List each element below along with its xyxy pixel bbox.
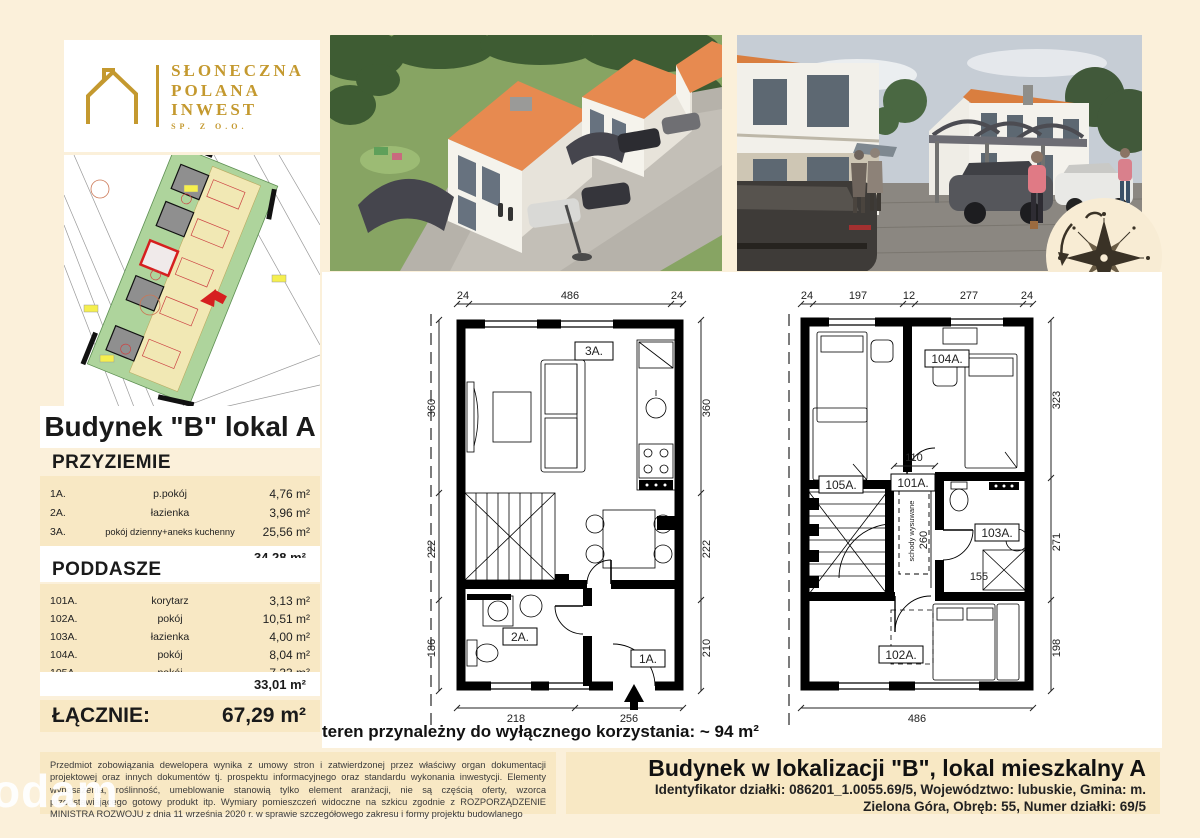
svg-text:103A.: 103A. [981, 526, 1012, 540]
svg-text:105A.: 105A. [825, 478, 856, 492]
building-title-strip: Budynek "B" lokal A [40, 406, 320, 448]
table-row: 101A. korytarz 3,13 m² [50, 592, 310, 610]
brand-line1: SŁONECZNA [171, 61, 304, 81]
site-plan-drawing [64, 155, 320, 407]
brand-line3: INWEST [171, 100, 304, 120]
plot-id-line1: Identyfikator działki: 086201_1.0055.69/… [580, 782, 1146, 799]
total-value: 33,01 m² [254, 677, 306, 692]
room-name: p.pokój [92, 488, 248, 500]
grand-total-value: 67,29 m² [222, 704, 306, 728]
svg-text:110: 110 [905, 452, 923, 464]
svg-text:24: 24 [801, 290, 813, 302]
building-title: Budynek "B" lokal A [44, 411, 315, 443]
svg-text:schody wysuwane: schody wysuwane [907, 501, 916, 562]
plot-id-line2: Zielona Góra, Obręb: 55, Numer działki: … [580, 799, 1146, 816]
room-name: korytarz [92, 595, 248, 607]
house-logo-icon [80, 62, 144, 130]
svg-text:222: 222 [426, 540, 438, 558]
total-poddasze: 33,01 m² [40, 672, 320, 696]
svg-text:24: 24 [1021, 290, 1033, 302]
floorplan-ground: 24 486 24 360 222 186 360 222 210 218 25… [425, 288, 715, 733]
svg-text:12: 12 [903, 290, 915, 302]
svg-text:486: 486 [908, 713, 926, 725]
room-number: 2A. [50, 507, 92, 519]
table-przyziemie: 1A. p.pokój 4,76 m² 2A. łazienka 3,96 m²… [40, 476, 320, 546]
svg-text:1A.: 1A. [639, 652, 657, 666]
room-name: pokój [92, 649, 248, 661]
render-aerial-view [330, 35, 722, 271]
svg-text:277: 277 [960, 290, 978, 302]
svg-text:210: 210 [701, 639, 713, 657]
svg-text:198: 198 [1051, 639, 1063, 657]
brand-logo: SŁONECZNA POLANA INWEST SP. Z O.O. [64, 40, 320, 152]
portal-watermark: odam [0, 764, 119, 818]
flyer-page: SŁONECZNA POLANA INWEST SP. Z O.O. [0, 0, 1200, 838]
brand-line2: POLANA [171, 81, 304, 101]
table-row: 104A. pokój 8,04 m² [50, 646, 310, 664]
svg-text:486: 486 [561, 290, 579, 302]
floorplan-attic: 24 197 12 277 24 323 271 198 486 [783, 288, 1078, 733]
room-area: 4,76 m² [248, 487, 310, 501]
svg-text:24: 24 [671, 290, 683, 302]
grand-total: ŁĄCZNIE: 67,29 m² [40, 700, 320, 732]
room-number: 102A. [50, 613, 92, 625]
logo-divider [156, 65, 159, 127]
svg-text:360: 360 [701, 399, 713, 417]
room-name: pokój dzienny+aneks kuchenny [92, 527, 248, 537]
svg-text:260: 260 [918, 531, 930, 549]
svg-text:2A.: 2A. [511, 630, 529, 644]
room-area: 25,56 m² [248, 525, 310, 539]
svg-text:271: 271 [1051, 533, 1063, 551]
svg-text:3A.: 3A. [585, 344, 603, 358]
room-number: 3A. [50, 526, 92, 538]
section-title-przyziemie: PRZYZIEMIE [52, 452, 312, 476]
room-name: pokój [92, 613, 248, 625]
table-row: 2A. łazienka 3,96 m² [50, 503, 310, 522]
brand-name: SŁONECZNA POLANA INWEST [171, 61, 304, 120]
table-row: 102A. pokój 10,51 m² [50, 610, 310, 628]
svg-text:197: 197 [849, 290, 867, 302]
room-area: 3,13 m² [248, 594, 310, 608]
room-number: 1A. [50, 488, 92, 500]
svg-text:186: 186 [426, 639, 438, 657]
room-name: łazienka [92, 507, 248, 519]
room-number: 104A. [50, 649, 92, 661]
svg-text:155: 155 [970, 571, 988, 583]
room-number: 103A. [50, 631, 92, 643]
disclaimer-text: Przedmiot zobowiązania dewelopera wynika… [50, 759, 546, 820]
land-use-note: teren przynależny do wyłącznego korzysta… [322, 722, 842, 742]
grand-total-label: ŁĄCZNIE: [52, 704, 150, 728]
svg-text:101A.: 101A. [897, 476, 928, 490]
svg-text:24: 24 [457, 290, 469, 302]
room-area: 10,51 m² [248, 612, 310, 626]
svg-text:104A.: 104A. [931, 352, 962, 366]
section-title-poddasze: PODDASZE [40, 558, 320, 582]
room-area: 3,96 m² [248, 506, 310, 520]
plot-identification-box: Budynek w lokalizacji "B", lokal mieszka… [566, 752, 1160, 814]
svg-text:323: 323 [1051, 391, 1063, 409]
svg-text:102A.: 102A. [885, 648, 916, 662]
table-row: 1A. p.pokój 4,76 m² [50, 484, 310, 503]
svg-text:360: 360 [426, 399, 438, 417]
room-area: 4,00 m² [248, 630, 310, 644]
brand-subtitle: SP. Z O.O. [171, 122, 304, 131]
footer-building-title: Budynek w lokalizacji "B", lokal mieszka… [580, 755, 1146, 782]
room-area: 8,04 m² [248, 648, 310, 662]
table-row: 3A. pokój dzienny+aneks kuchenny 25,56 m… [50, 522, 310, 541]
room-number: 101A. [50, 595, 92, 607]
room-name: łazienka [92, 631, 248, 643]
site-plan-map [64, 155, 320, 407]
svg-text:222: 222 [701, 540, 713, 558]
table-row: 103A. łazienka 4,00 m² [50, 628, 310, 646]
